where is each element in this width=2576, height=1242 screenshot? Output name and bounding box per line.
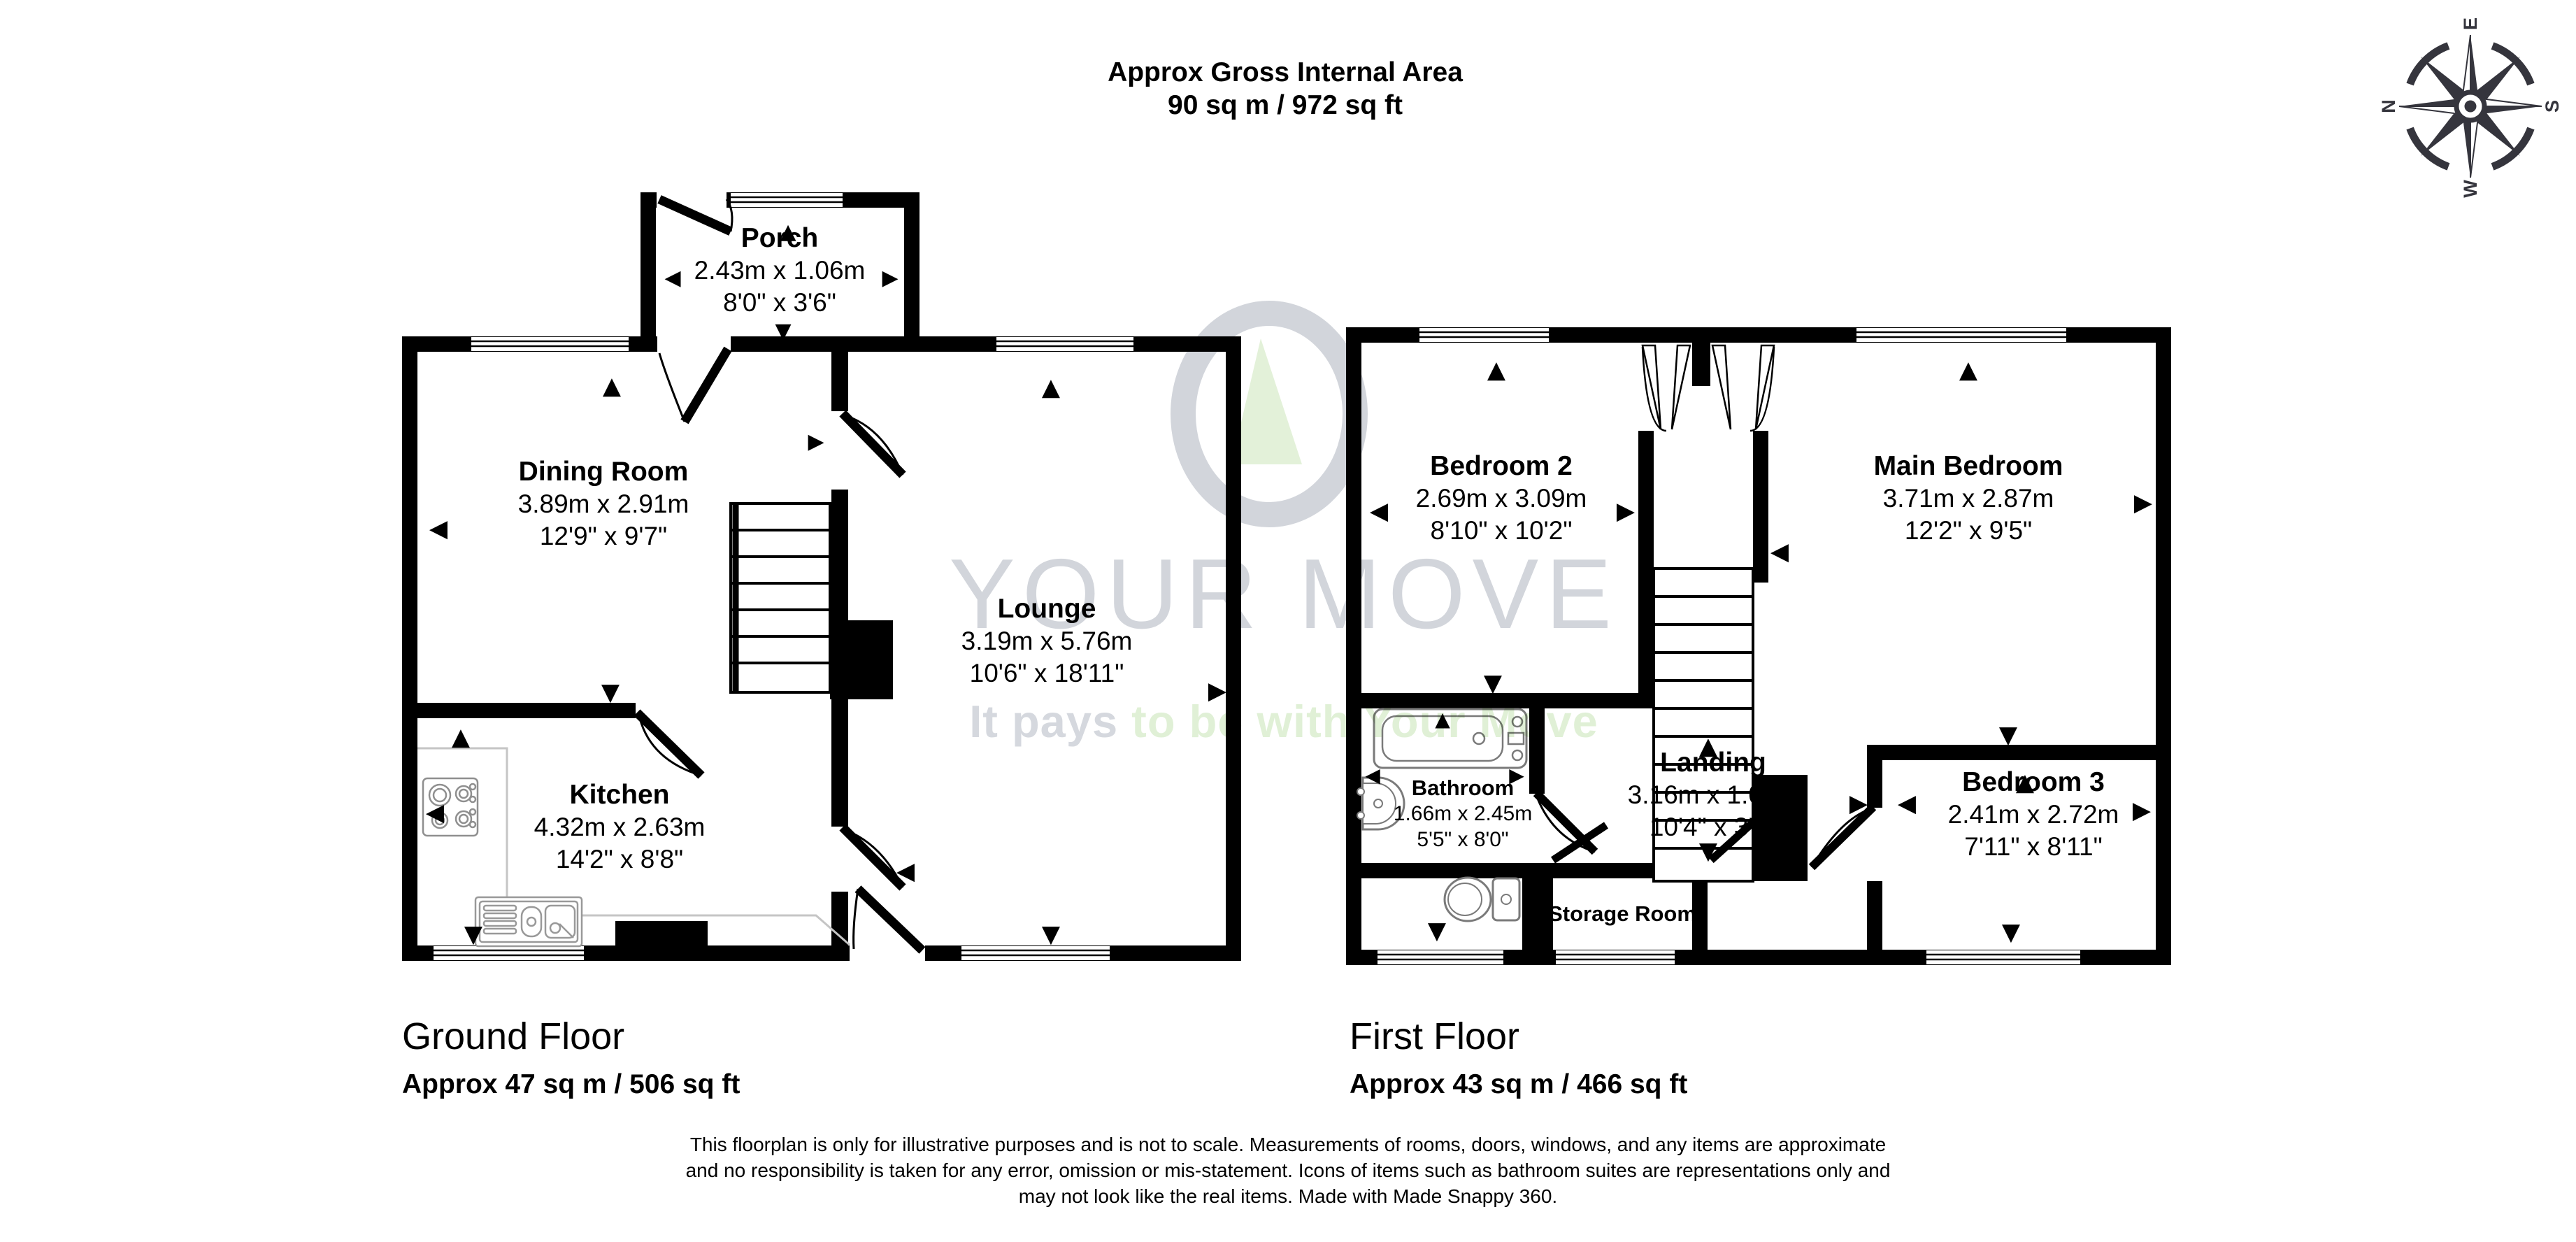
bathtub-icon — [1374, 709, 1526, 768]
measure-arrow-icon: ▼ — [1428, 917, 1447, 945]
measure-arrow-icon: ▶ — [1208, 677, 1227, 705]
room-name: Lounge — [961, 593, 1133, 625]
compass-star — [2399, 35, 2542, 178]
room-label-bathroom: Bathroom 1.66m x 2.45m 5'5" x 8'0" — [1394, 775, 1532, 852]
measure-arrow-icon: ◀ — [664, 266, 680, 290]
compass-south: S — [2542, 100, 2563, 113]
compass-rose-icon: E S W N — [2376, 10, 2565, 199]
room-imperial: 5'5" x 8'0" — [1394, 827, 1532, 852]
room-label-storage-room: Storage Room — [1548, 901, 1696, 927]
room-name: Bedroom 2 — [1416, 450, 1587, 483]
room-label-bedroom-2: Bedroom 2 2.69m x 3.09m 8'10" x 10'2" — [1416, 450, 1587, 547]
room-metric: 3.19m x 5.76m — [961, 625, 1133, 657]
room-label-kitchen: Kitchen 4.32m x 2.63m 14'2" x 8'8" — [534, 779, 706, 876]
first-floor-caption: First Floor Approx 43 sq m / 466 sq ft — [1350, 1015, 1687, 1101]
room-metric: 2.69m x 3.09m — [1416, 483, 1587, 515]
room-name: Porch — [694, 222, 866, 255]
measure-arrow-icon: ◀ — [1370, 497, 1389, 525]
room-name: Bathroom — [1394, 775, 1532, 801]
room-imperial: 7'11" x 8'11" — [1948, 831, 2119, 863]
measure-arrow-icon: ▶ — [808, 429, 824, 454]
first-floor-walls — [1346, 327, 2171, 965]
room-metric: 4.32m x 2.63m — [534, 811, 706, 843]
disclaimer-line1: This floorplan is only for illustrative … — [686, 1132, 1891, 1157]
room-metric: 2.43m x 1.06m — [694, 255, 866, 287]
ground-floor-caption: Ground Floor Approx 47 sq m / 506 sq ft — [402, 1015, 740, 1101]
room-metric: 3.16m x 1.05m — [1628, 779, 1799, 811]
measure-arrow-icon: ▼ — [1484, 669, 1503, 697]
room-name: Main Bedroom — [1874, 450, 2063, 483]
floor-name: First Floor — [1350, 1015, 1687, 1057]
disclaimer: This floorplan is only for illustrative … — [686, 1132, 1891, 1209]
floor-name: Ground Floor — [402, 1015, 740, 1057]
measure-arrow-icon: ◀ — [896, 857, 915, 885]
ground-stairs — [731, 504, 830, 692]
measure-arrow-icon: ▲ — [1959, 356, 1978, 384]
measure-arrow-icon: ◀ — [1898, 790, 1917, 818]
room-name: Dining Room — [518, 456, 689, 488]
measure-arrow-icon: ▶ — [2134, 489, 2153, 517]
room-name: Bedroom 3 — [1948, 766, 2119, 799]
room-imperial: 12'2" x 9'5" — [1874, 515, 2063, 547]
compass-west: W — [2460, 180, 2481, 198]
measure-arrow-icon: ▼ — [775, 319, 791, 343]
page-title: Approx Gross Internal Area 90 sq m / 972… — [1108, 56, 1463, 122]
floor-area: Approx 47 sq m / 506 sq ft — [402, 1069, 740, 1101]
room-label-dining-room: Dining Room 3.89m x 2.91m 12'9" x 9'7" — [518, 456, 689, 552]
room-imperial: 8'0" x 3'6" — [694, 287, 866, 319]
room-name: Landing — [1628, 747, 1799, 779]
measure-arrow-icon: ◀ — [1365, 764, 1380, 787]
room-metric: 3.89m x 2.91m — [518, 488, 689, 520]
room-imperial: 10'6" x 18'11" — [961, 657, 1133, 690]
room-name: Kitchen — [534, 779, 706, 811]
measure-arrow-icon: ▲ — [603, 372, 622, 400]
room-metric: 2.41m x 2.72m — [1948, 799, 2119, 831]
measure-arrow-icon: ▼ — [464, 920, 483, 948]
room-metric: 1.66m x 2.45m — [1394, 801, 1532, 827]
measure-arrow-icon: ▼ — [601, 678, 620, 706]
compass-north: N — [2378, 99, 2399, 113]
room-imperial: 12'9" x 9'7" — [518, 520, 689, 552]
measure-arrow-icon: ▲ — [1042, 373, 1061, 401]
floorplan-page: { "header": { "title_line1": "Approx Gro… — [0, 0, 2576, 1242]
measure-arrow-icon: ▶ — [1617, 497, 1636, 525]
measure-arrow-icon: ▼ — [1999, 721, 2018, 749]
room-metric: 3.71m x 2.87m — [1874, 483, 2063, 515]
room-name: Storage Room — [1548, 901, 1696, 927]
compass-east: E — [2460, 17, 2481, 30]
room-label-landing: Landing 3.16m x 1.05m 10'4" x 3'5" — [1628, 747, 1799, 843]
measure-arrow-icon: ▼ — [2002, 918, 2021, 946]
measure-arrow-icon: ◀ — [1770, 538, 1789, 566]
measure-arrow-icon: ▼ — [1042, 920, 1061, 948]
room-imperial: 14'2" x 8'8" — [534, 843, 706, 876]
title-line1: Approx Gross Internal Area — [1108, 56, 1463, 89]
room-label-lounge: Lounge 3.19m x 5.76m 10'6" x 18'11" — [961, 593, 1133, 690]
room-label-porch: Porch 2.43m x 1.06m 8'0" x 3'6" — [694, 222, 866, 319]
room-label-main-bedroom: Main Bedroom 3.71m x 2.87m 12'2" x 9'5" — [1874, 450, 2063, 547]
measure-arrow-icon: ▲ — [452, 723, 471, 751]
room-imperial: 10'4" x 3'5" — [1628, 811, 1799, 843]
kitchen-sink-icon — [475, 897, 582, 946]
measure-arrow-icon: ▶ — [882, 266, 898, 290]
room-label-bedroom-3: Bedroom 3 2.41m x 2.72m 7'11" x 8'11" — [1948, 766, 2119, 863]
disclaimer-line2: and no responsibility is taken for any e… — [686, 1157, 1891, 1183]
measure-arrow-icon: ◀ — [429, 515, 448, 543]
measure-arrow-icon: ▲ — [1487, 356, 1506, 384]
room-imperial: 8'10" x 10'2" — [1416, 515, 1587, 547]
disclaimer-line3: may not look like the real items. Made w… — [686, 1183, 1891, 1209]
first-floor-plan: ▲ ◀ ▶ ▼ ▲ ▶ ▼ ◀ ▲ ▶ ▼ ▲ ◀ ▶ ▲ ▼ ▶ ◀ ▼ — [1346, 327, 2171, 971]
watermark: YOUR MOVE It pays to be with Your Move — [0, 0, 2576, 1242]
floor-area: Approx 43 sq m / 466 sq ft — [1350, 1069, 1687, 1101]
toilet-icon — [1445, 878, 1519, 921]
measure-arrow-icon: ▶ — [1849, 790, 1868, 818]
title-line2: 90 sq m / 972 sq ft — [1108, 89, 1463, 122]
measure-arrow-icon: ▲ — [1435, 708, 1450, 731]
measure-arrow-icon: ◀ — [426, 799, 445, 827]
measure-arrow-icon: ▶ — [2133, 797, 2152, 825]
